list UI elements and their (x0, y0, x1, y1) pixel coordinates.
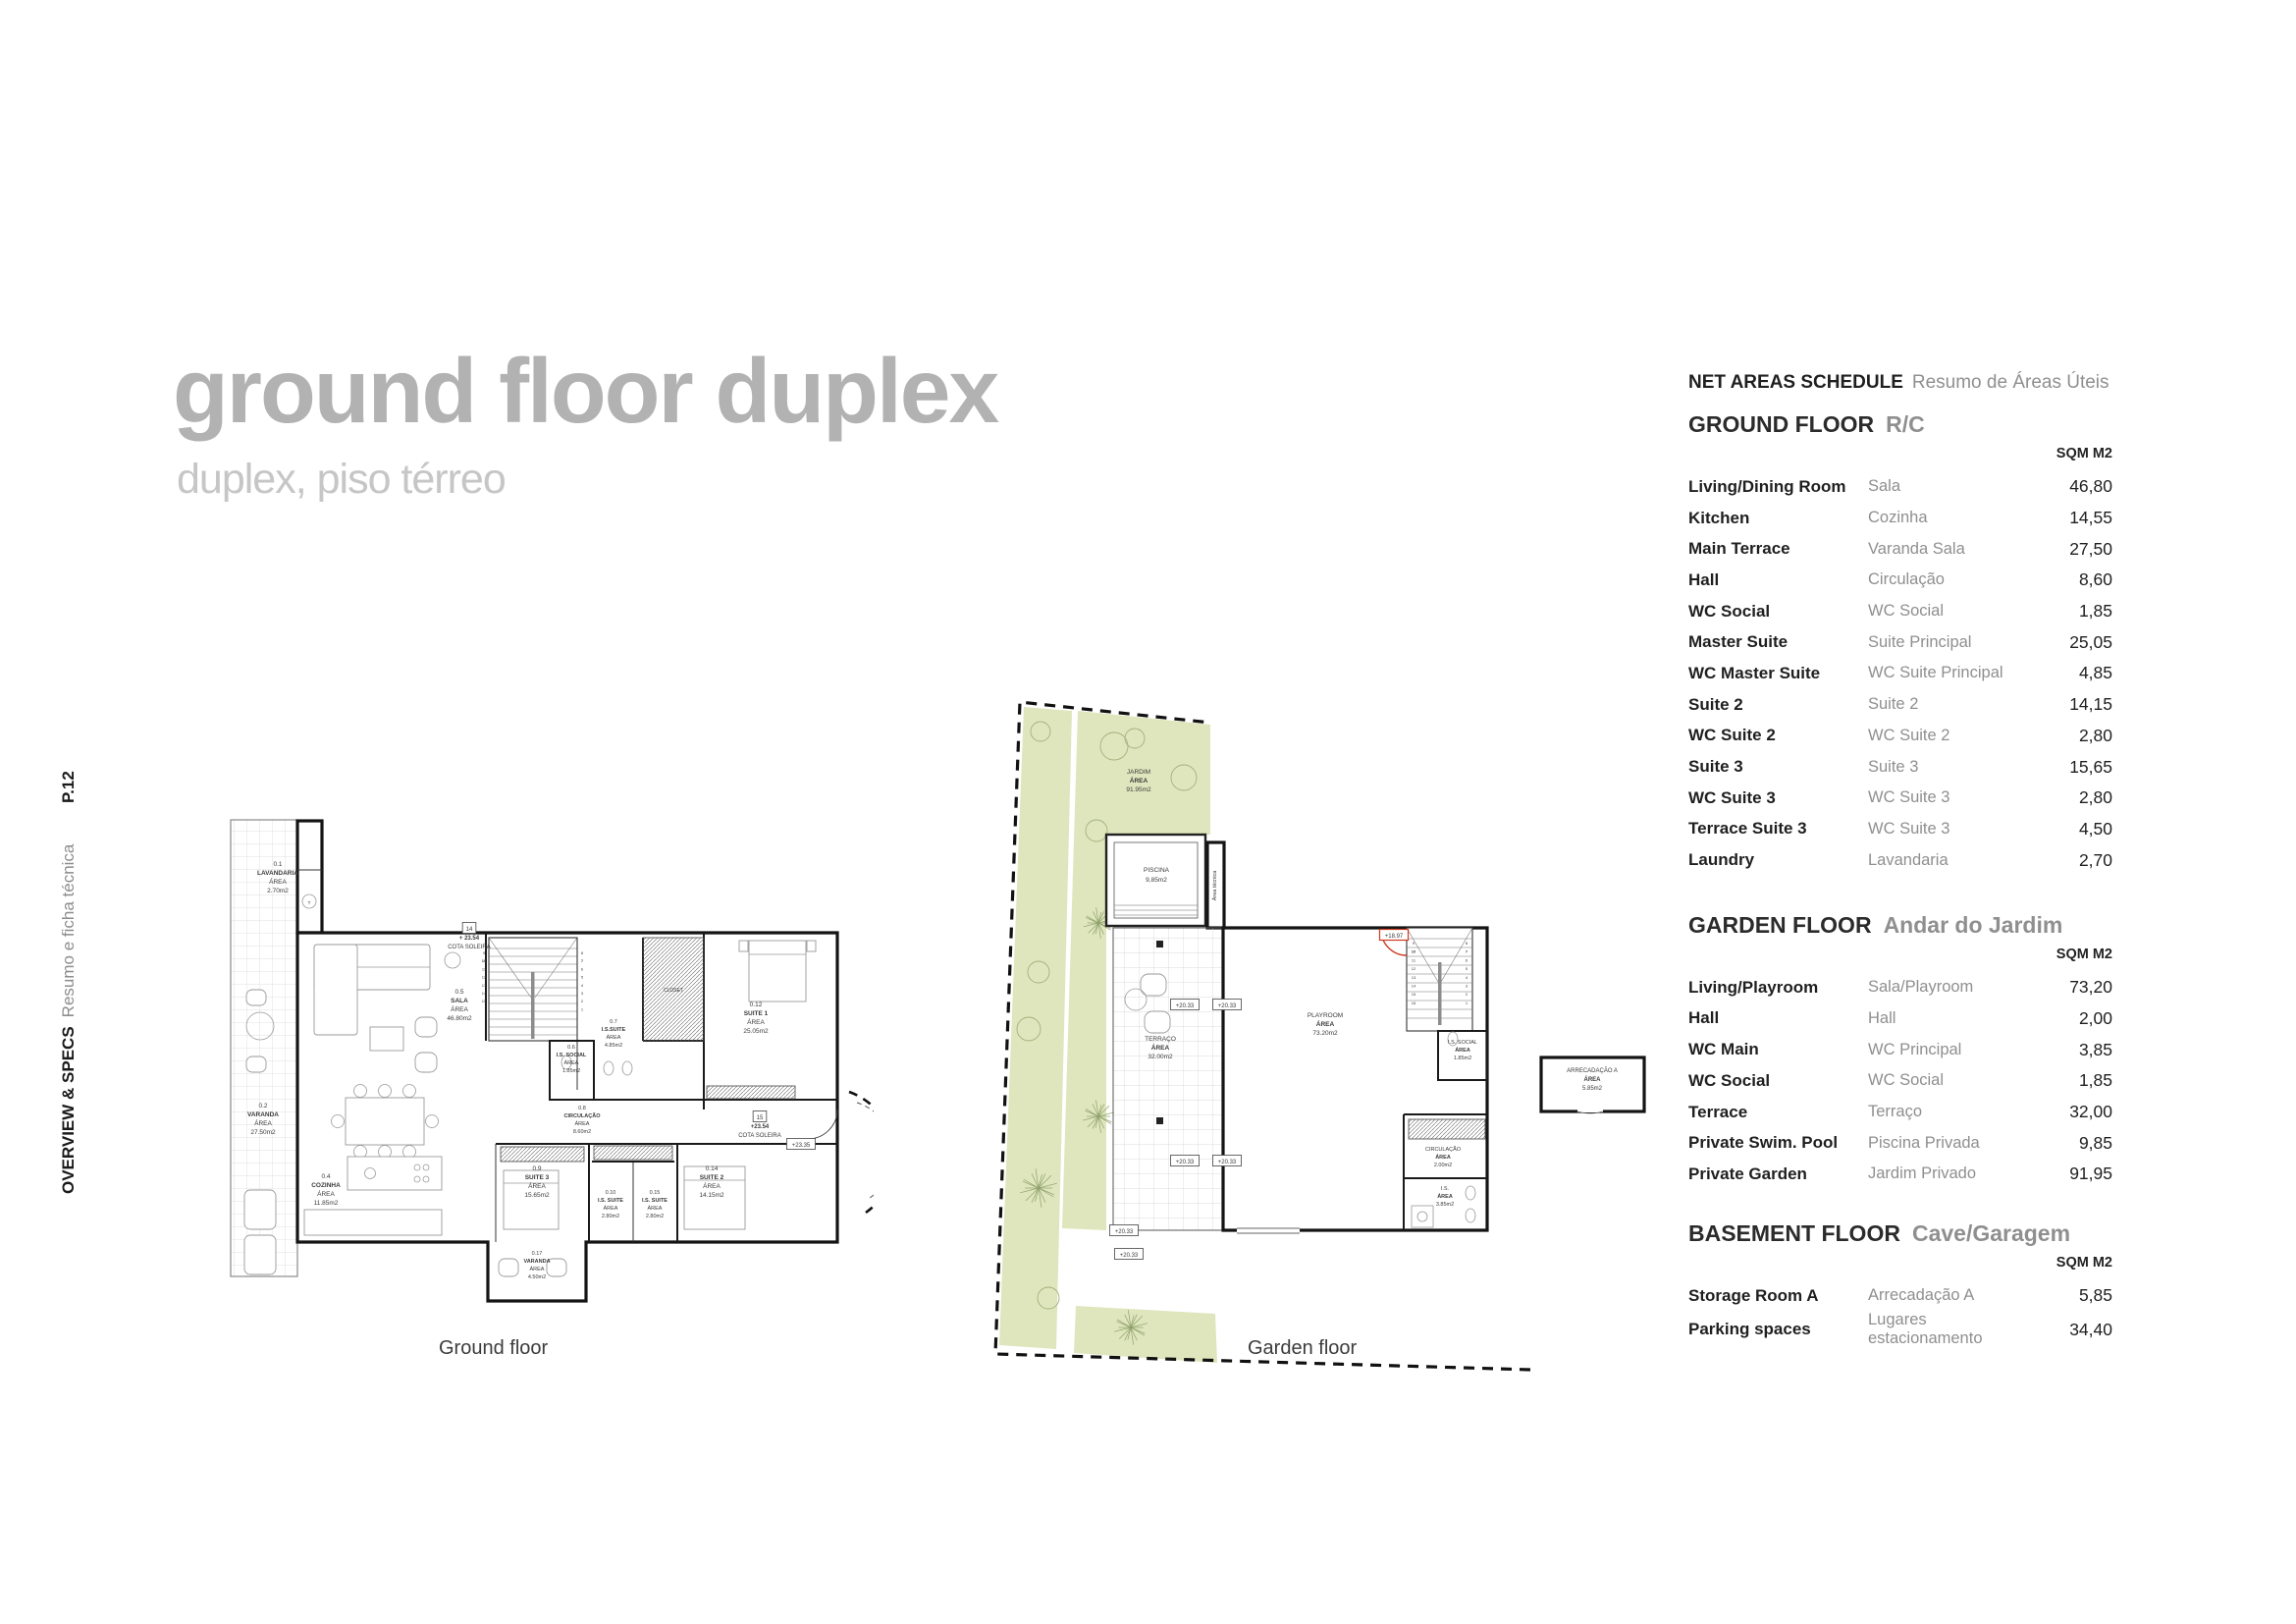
svg-text:T: T (308, 900, 311, 905)
room-name-en: Parking spaces (1688, 1320, 1868, 1339)
svg-text:ÁREA: ÁREA (703, 1181, 721, 1190)
svg-text:+20.33: +20.33 (1115, 1229, 1134, 1235)
plan-label: +20.33 (1170, 1156, 1199, 1166)
svg-text:ÁREA: ÁREA (648, 1205, 663, 1212)
svg-text:0.14: 0.14 (706, 1165, 719, 1172)
svg-text:ÁREA: ÁREA (1583, 1076, 1601, 1083)
caption-garden-floor: Garden floor (1248, 1337, 1357, 1360)
svg-text:0.1: 0.1 (273, 861, 282, 868)
schedule-row: Terrace Terraço 32,00 (1688, 1097, 2112, 1128)
svg-text:0.4: 0.4 (321, 1173, 330, 1180)
room-name-pt: WC Suite Principal (1868, 664, 2042, 682)
room-name-pt: Suite Principal (1868, 633, 2042, 652)
room-name-pt: Arrecadação A (1868, 1286, 2042, 1305)
svg-text:25.05m2: 25.05m2 (743, 1028, 769, 1035)
room-area-value: 46,80 (2042, 476, 2112, 497)
svg-text:LAVANDARIA: LAVANDARIA (257, 870, 298, 877)
room-name-en: Private Swim. Pool (1688, 1133, 1868, 1153)
room-area-value: 4,85 (2042, 663, 2112, 683)
svg-text:12: 12 (482, 975, 487, 980)
svg-text:ÁREA: ÁREA (575, 1120, 590, 1127)
svg-text:I.S. SOCIAL: I.S. SOCIAL (557, 1053, 587, 1058)
room-name-en: Suite 3 (1688, 757, 1868, 777)
schedule-section-basement: BASEMENT FLOORCave/Garagem SQM M2 Storag… (1688, 1219, 2112, 1349)
room-area-value: 2,70 (2042, 850, 2112, 871)
svg-text:4.50m2: 4.50m2 (528, 1274, 546, 1280)
svg-text:Área técnica: Área técnica (1211, 870, 1218, 901)
svg-text:ÁREA: ÁREA (269, 877, 287, 886)
room-name-pt: WC Suite 3 (1868, 820, 2042, 839)
svg-text:32.00m2: 32.00m2 (1148, 1054, 1173, 1060)
room-name-en: Terrace (1688, 1103, 1868, 1122)
svg-text:0.15: 0.15 (650, 1190, 661, 1196)
room-area-value: 34,40 (2042, 1320, 2112, 1340)
section-heading-en: BASEMENT FLOOR (1688, 1220, 1900, 1246)
svg-text:14: 14 (1412, 984, 1416, 989)
svg-text:0.9: 0.9 (532, 1165, 541, 1172)
room-name-en: Laundry (1688, 850, 1868, 870)
svg-text:2.80m2: 2.80m2 (646, 1214, 664, 1219)
svg-text:ÁREA: ÁREA (607, 1034, 621, 1041)
room-name-en: Living/Playroom (1688, 978, 1868, 998)
svg-text:SALA: SALA (451, 998, 468, 1004)
schedule-row: Hall Hall 2,00 (1688, 1003, 2112, 1035)
room-area-value: 9,85 (2042, 1133, 2112, 1154)
schedule-row: Storage Room A Arrecadação A 5,85 (1688, 1280, 2112, 1312)
room-name-pt: WC Suite 2 (1868, 727, 2042, 745)
schedule-row: Private Garden Jardim Privado 91,95 (1688, 1159, 2112, 1190)
svg-text:SUITE 2: SUITE 2 (700, 1174, 724, 1181)
room-name-en: Private Garden (1688, 1164, 1868, 1184)
svg-text:ÁREA: ÁREA (747, 1017, 765, 1026)
schedule-row: Parking spaces Lugares estacionamento 34… (1688, 1311, 2112, 1348)
room-name-en: Hall (1688, 1008, 1868, 1028)
room-name-pt: WC Social (1868, 1071, 2042, 1090)
plan-label: +20.33 (1212, 1000, 1241, 1010)
room-name-pt: Cozinha (1868, 509, 2042, 527)
plan-label: JARDIMÁREA91.95m2 (1126, 769, 1151, 793)
plan-label: +18.97 (1379, 930, 1408, 941)
svg-text:10: 10 (1412, 949, 1416, 954)
svg-text:2.00m2: 2.00m2 (1434, 1163, 1452, 1168)
staircase (489, 938, 577, 1041)
plan-label: Área técnica (1211, 870, 1218, 901)
room-area-value: 1,85 (2042, 1070, 2112, 1091)
schedule-row: WC Social WC Social 1,85 (1688, 596, 2112, 627)
section-heading-en: GROUND FLOOR (1688, 411, 1874, 437)
section-heading-pt: Andar do Jardim (1884, 912, 2063, 938)
room-area-value: 2,80 (2042, 726, 2112, 746)
room-name-en: WC Suite 2 (1688, 726, 1868, 745)
svg-text:1.85m2: 1.85m2 (562, 1068, 580, 1074)
section-rows: Storage Room A Arrecadação A 5,85 Parkin… (1688, 1280, 2112, 1349)
section-heading: GROUND FLOORR/C (1688, 410, 2112, 438)
svg-text:I.S. SOCIAL: I.S. SOCIAL (1448, 1040, 1477, 1046)
schedule-row: Suite 3 Suite 3 15,65 (1688, 751, 2112, 783)
plan-label: +20.33 (1170, 1000, 1199, 1010)
svg-text:15: 15 (482, 999, 487, 1003)
svg-text:+20.33: +20.33 (1176, 1160, 1195, 1165)
plan-label: CLOSET (664, 988, 683, 994)
unit-header: SQM M2 (1688, 947, 2112, 964)
svg-text:3.85m2: 3.85m2 (1436, 1202, 1454, 1208)
schedule-row: Living/Playroom Sala/Playroom 73,20 (1688, 972, 2112, 1003)
svg-text:0.6: 0.6 (567, 1045, 575, 1051)
room-name-en: Terrace Suite 3 (1688, 819, 1868, 839)
svg-text:COZINHA: COZINHA (311, 1182, 341, 1189)
section-heading-pt: Cave/Garagem (1912, 1220, 2070, 1246)
svg-text:+20.33: +20.33 (1176, 1003, 1195, 1009)
schedule-row: Terrace Suite 3 WC Suite 3 4,50 (1688, 814, 2112, 845)
schedule-row: Kitchen Cozinha 14,55 (1688, 503, 2112, 534)
section-heading: GARDEN FLOORAndar do Jardim (1688, 911, 2112, 939)
svg-text:0.2: 0.2 (258, 1103, 267, 1110)
net-areas-schedule: NET AREAS SCHEDULEResumo de Áreas Úteis … (1688, 371, 2112, 1348)
svg-text:COTA SOLEIRA: COTA SOLEIRA (738, 1133, 781, 1139)
svg-text:15: 15 (757, 1115, 764, 1121)
svg-text:73.20m2: 73.20m2 (1312, 1030, 1338, 1037)
floor-plan-garden: JARDIMÁREA91.95m2PISCINA9,85m2Área técni… (991, 687, 1669, 1384)
svg-text:PISCINA: PISCINA (1144, 867, 1170, 874)
svg-text:ÁREA: ÁREA (604, 1205, 618, 1212)
plan-label: +23.35 (786, 1139, 815, 1150)
schedule-row: Main Terrace Varanda Sala 27,50 (1688, 533, 2112, 565)
svg-text:ARRECADAÇÃO A: ARRECADAÇÃO A (1567, 1067, 1618, 1074)
svg-text:14: 14 (466, 927, 473, 933)
room-area-value: 14,55 (2042, 508, 2112, 528)
garden-terrace (1113, 928, 1223, 1230)
svg-text:ÁREA: ÁREA (317, 1189, 335, 1198)
room-name-pt: Lugares estacionamento (1868, 1311, 2042, 1348)
svg-text:CIRCULAÇÃO: CIRCULAÇÃO (1425, 1146, 1462, 1153)
plan-label: +20.33 (1114, 1249, 1143, 1260)
svg-text:5.85m2: 5.85m2 (1582, 1086, 1603, 1092)
svg-text:SUITE 3: SUITE 3 (525, 1174, 550, 1181)
room-area-value: 8,60 (2042, 569, 2112, 590)
svg-text:+23.35: +23.35 (792, 1143, 811, 1149)
svg-text:12: 12 (1412, 966, 1416, 971)
room-area-value: 1,85 (2042, 601, 2112, 622)
svg-text:27.50m2: 27.50m2 (250, 1129, 276, 1136)
svg-text:ÁREA: ÁREA (1435, 1154, 1451, 1161)
room-name-pt: Suite 2 (1868, 695, 2042, 714)
plan-label: +20.33 (1109, 1225, 1138, 1236)
svg-text:I.S.: I.S. (1441, 1186, 1450, 1192)
svg-text:ÁREA: ÁREA (451, 1004, 468, 1013)
svg-text:91.95m2: 91.95m2 (1126, 786, 1151, 793)
room-name-en: Hall (1688, 570, 1868, 590)
section-label-pt: Resumo e ficha técnica (59, 844, 78, 1018)
svg-text:ÁREA: ÁREA (528, 1181, 546, 1190)
room-area-value: 2,00 (2042, 1008, 2112, 1029)
unit-header: SQM M2 (1688, 446, 2112, 463)
schedule-row: Suite 2 Suite 2 14,15 (1688, 689, 2112, 721)
schedule-row: Master Suite Suite Principal 25,05 (1688, 626, 2112, 658)
room-name-pt: Varanda Sala (1868, 540, 2042, 559)
room-name-pt: Circulação (1868, 570, 2042, 589)
svg-text:46.80m2: 46.80m2 (447, 1015, 472, 1022)
schedule-row: WC Main WC Principal 3,85 (1688, 1034, 2112, 1065)
svg-text:JARDIM: JARDIM (1127, 769, 1150, 776)
room-area-value: 27,50 (2042, 539, 2112, 560)
svg-text:+20.33: +20.33 (1218, 1160, 1237, 1165)
room-name-pt: Lavandaria (1868, 851, 2042, 870)
room-name-en: Storage Room A (1688, 1286, 1868, 1306)
section-heading-pt: R/C (1886, 411, 1925, 437)
room-name-pt: Hall (1868, 1009, 2042, 1028)
svg-text:CLOSET: CLOSET (664, 988, 683, 994)
room-name-en: WC Social (1688, 1071, 1868, 1091)
page-title: ground floor duplex (173, 346, 997, 437)
svg-text:1.85m2: 1.85m2 (1454, 1056, 1471, 1061)
room-name-pt: Jardim Privado (1868, 1164, 2042, 1183)
svg-text:+23.54: +23.54 (751, 1124, 770, 1130)
svg-text:2.80m2: 2.80m2 (602, 1214, 619, 1219)
schedule-row: Living/Dining Room Sala 46,80 (1688, 471, 2112, 503)
schedule-section-ground: GROUND FLOORR/C SQM M2 Living/Dining Roo… (1688, 410, 2112, 876)
svg-text:ÁREA: ÁREA (530, 1266, 545, 1272)
schedule-row: Hall Circulação 8,60 (1688, 565, 2112, 596)
room-name-en: Living/Dining Room (1688, 477, 1868, 497)
svg-text:0.7: 0.7 (610, 1019, 617, 1025)
svg-text:8.60m2: 8.60m2 (573, 1129, 591, 1135)
section-rows: Living/Dining Room Sala 46,80 Kitchen Co… (1688, 471, 2112, 876)
svg-text:0.8: 0.8 (578, 1106, 586, 1111)
svg-text:13: 13 (1412, 975, 1416, 980)
room-name-pt: Terraço (1868, 1103, 2042, 1121)
room-area-value: 91,95 (2042, 1164, 2112, 1184)
room-area-value: 25,05 (2042, 632, 2112, 653)
plan-label: T (308, 900, 311, 905)
svg-text:TERRAÇO: TERRAÇO (1145, 1036, 1176, 1043)
page-number: P.12 (60, 771, 77, 803)
staircase (1407, 928, 1472, 1031)
room-name-en: WC Suite 3 (1688, 788, 1868, 808)
svg-text:PLAYROOM: PLAYROOM (1308, 1012, 1343, 1019)
section-rows: Living/Playroom Sala/Playroom 73,20 Hall… (1688, 972, 2112, 1190)
svg-text:+18.97: +18.97 (1385, 934, 1404, 940)
sliding-door (1237, 1224, 1300, 1236)
section-heading-en: GARDEN FLOOR (1688, 912, 1872, 938)
room-name-pt: WC Suite 3 (1868, 788, 2042, 807)
schedule-row: WC Suite 2 WC Suite 2 2,80 (1688, 721, 2112, 752)
room-area-value: 32,00 (2042, 1102, 2112, 1122)
unit-header: SQM M2 (1688, 1255, 2112, 1272)
svg-text:0.5: 0.5 (454, 989, 463, 996)
schedule-title-en: NET AREAS SCHEDULE (1688, 372, 1903, 393)
schedule-title-pt: Resumo de Áreas Úteis (1912, 372, 2109, 393)
svg-text:16: 16 (1412, 1001, 1416, 1005)
svg-text:ÁREA: ÁREA (1316, 1019, 1335, 1028)
schedule-title: NET AREAS SCHEDULEResumo de Áreas Úteis (1688, 371, 2112, 395)
svg-text:0.12: 0.12 (750, 1001, 763, 1008)
schedule-row: Private Swim. Pool Piscina Privada 9,85 (1688, 1127, 2112, 1159)
room-name-pt: Suite 3 (1868, 758, 2042, 777)
schedule-row: WC Suite 3 WC Suite 3 2,80 (1688, 783, 2112, 814)
svg-text:15.65m2: 15.65m2 (524, 1192, 550, 1199)
laundry-room (297, 821, 322, 933)
section-heading: BASEMENT FLOORCave/Garagem (1688, 1219, 2112, 1247)
svg-text:15: 15 (1412, 992, 1416, 997)
schedule-section-garden: GARDEN FLOORAndar do Jardim SQM M2 Livin… (1688, 911, 2112, 1190)
plan-label: +20.33 (1212, 1156, 1241, 1166)
room-name-pt: Sala/Playroom (1868, 978, 2042, 997)
room-area-value: 73,20 (2042, 977, 2112, 998)
svg-text:14.15m2: 14.15m2 (699, 1192, 724, 1199)
svg-text:+ 23.54: + 23.54 (459, 936, 480, 942)
room-area-value: 3,85 (2042, 1040, 2112, 1060)
svg-text:ÁREA: ÁREA (1437, 1193, 1453, 1200)
room-area-value: 2,80 (2042, 787, 2112, 808)
brochure-page: ground floor duplex duplex, piso térreo … (0, 0, 2296, 1624)
svg-text:ÁREA: ÁREA (564, 1059, 579, 1066)
svg-text:CIRCULAÇÃO: CIRCULAÇÃO (564, 1112, 602, 1119)
svg-text:VARANDA: VARANDA (247, 1111, 279, 1118)
svg-text:13: 13 (482, 983, 487, 988)
svg-text:ÁREA: ÁREA (1455, 1047, 1470, 1054)
svg-text:11.85m2: 11.85m2 (314, 1200, 339, 1207)
room-name-en: Suite 2 (1688, 695, 1868, 715)
room-name-en: Master Suite (1688, 632, 1868, 652)
svg-text:4.85m2: 4.85m2 (605, 1043, 622, 1049)
room-name-en: WC Social (1688, 602, 1868, 622)
room-name-en: WC Main (1688, 1040, 1868, 1059)
room-name-en: WC Master Suite (1688, 664, 1868, 683)
svg-text:+20.33: +20.33 (1218, 1003, 1237, 1009)
schedule-row: WC Social WC Social 1,85 (1688, 1065, 2112, 1097)
svg-text:I.S. SUITE: I.S. SUITE (598, 1198, 623, 1204)
svg-text:2.70m2: 2.70m2 (267, 888, 289, 894)
svg-text:0.10: 0.10 (606, 1190, 616, 1196)
page-number-text: P.12 (59, 771, 78, 803)
svg-text:ÁREA: ÁREA (1130, 776, 1148, 785)
room-name-pt: Piscina Privada (1868, 1134, 2042, 1153)
page-subtitle: duplex, piso térreo (177, 459, 506, 501)
room-area-value: 4,50 (2042, 819, 2112, 839)
svg-text:VARANDA: VARANDA (523, 1259, 550, 1265)
svg-text:I.S.SUITE: I.S.SUITE (602, 1027, 626, 1033)
room-area-value: 15,65 (2042, 757, 2112, 778)
section-tab: OVERVIEW & SPECSResumo e ficha técnica (60, 844, 77, 1194)
room-name-pt: WC Social (1868, 602, 2042, 621)
svg-text:10: 10 (482, 958, 487, 963)
section-label-en: OVERVIEW & SPECS (59, 1026, 78, 1194)
floor-plan-ground: 0.1LAVANDARIAÁREA2.70m20.2VARANDAÁREA27.… (221, 805, 874, 1375)
svg-text:9,85m2: 9,85m2 (1146, 877, 1167, 884)
svg-text:I.S. SUITE: I.S. SUITE (642, 1198, 667, 1204)
svg-text:+20.33: +20.33 (1120, 1253, 1139, 1259)
room-name-en: Main Terrace (1688, 539, 1868, 559)
caption-ground-floor: Ground floor (439, 1337, 548, 1360)
room-name-pt: WC Principal (1868, 1041, 2042, 1059)
room-area-value: 5,85 (2042, 1285, 2112, 1306)
schedule-row: WC Master Suite WC Suite Principal 4,85 (1688, 658, 2112, 689)
room-area-value: 14,15 (2042, 694, 2112, 715)
svg-text:ÁREA: ÁREA (254, 1118, 272, 1127)
svg-text:14: 14 (482, 991, 487, 996)
room-name-en: Kitchen (1688, 509, 1868, 528)
svg-text:SUITE 1: SUITE 1 (744, 1010, 769, 1017)
svg-text:ÁREA: ÁREA (1151, 1043, 1170, 1052)
room-name-pt: Sala (1868, 477, 2042, 496)
schedule-row: Laundry Lavandaria 2,70 (1688, 844, 2112, 876)
svg-text:0.17: 0.17 (532, 1251, 543, 1257)
